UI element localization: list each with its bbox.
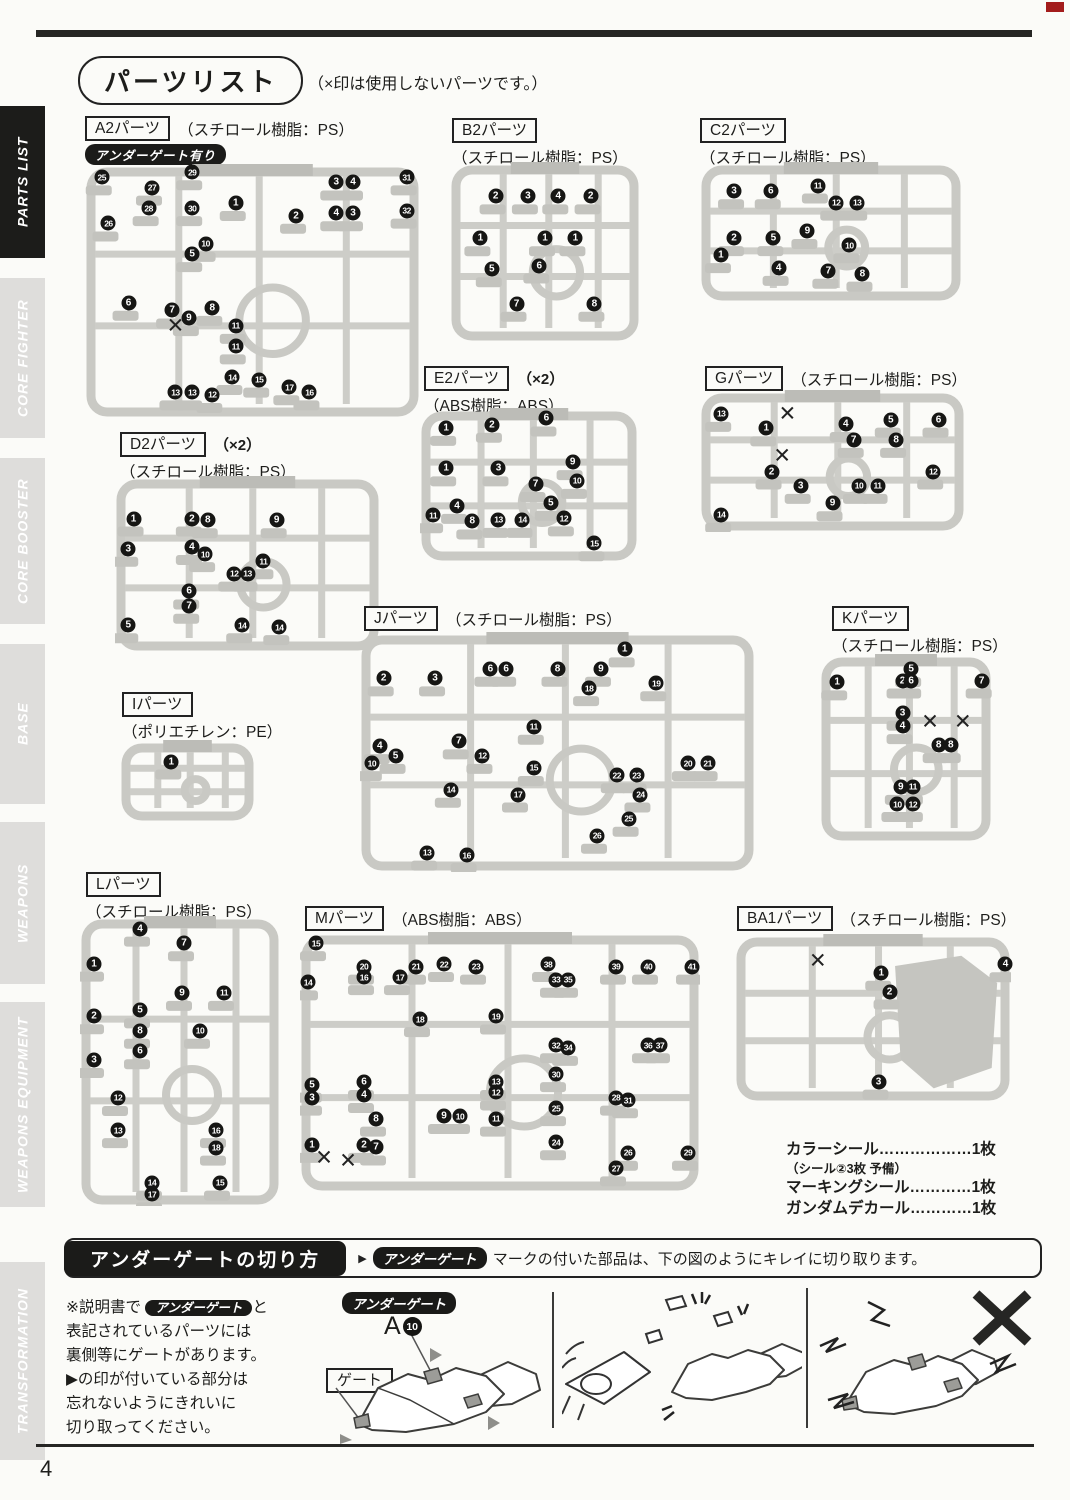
runner-diagram-c2: 36111213259101478 [700,160,962,302]
part-number: 1 [759,421,774,436]
part-number: 23 [469,959,484,974]
part-number: 12 [905,797,920,812]
part-number: 11 [810,178,825,193]
part-number: 8 [943,738,958,753]
runner-material: （スチロール樹脂：PS） [791,368,967,390]
part-number: 34 [561,1040,576,1055]
part-number: 4 [329,206,344,221]
part-number: 10 [198,236,213,251]
part-number: 7 [528,477,543,492]
part-number: 3 [727,184,742,199]
part-number: 13 [420,845,435,860]
runner-header-ba1: BA1パーツ（スチロール樹脂：PS） [737,906,1016,931]
accessory-seal-note: （シール②3枚 予備） [786,1161,1042,1178]
part-number: 13 [185,385,200,400]
part-number: 16 [459,848,474,863]
runner-header-j: Jパーツ（スチロール樹脂：PS） [364,606,622,631]
part-number: 11 [489,1111,504,1126]
part-number: 21 [409,959,424,974]
accessories-list: カラーシール………………1枚 （シール②3枚 予備） マーキングシール…………1… [786,1140,1042,1220]
part-number: 7 [974,673,989,688]
runner-diagram-i: 1 [120,738,255,822]
runner-label: BA1パーツ [737,906,833,931]
part-number: 17 [145,1187,160,1202]
part-number: 16 [209,1123,224,1138]
part-number: 20 [680,756,695,771]
manual-page: パーツリスト （×印は使用しないパーツです。） PARTS LISTCORE F… [0,0,1070,1500]
part-number: 8 [465,514,480,529]
part-number: 7 [451,734,466,749]
part-number: 3 [346,206,361,221]
part-number: 13 [111,1123,126,1138]
part-number: 6 [931,412,946,427]
part-number: 4 [998,957,1013,972]
part-number: 1 [228,195,243,210]
part-number: 17 [393,970,408,985]
part-number: 6 [133,1044,148,1059]
part-number: 10 [569,473,584,488]
part-number: 35 [561,972,576,987]
part-number: 1 [713,248,728,263]
sidebar-tab-transformation: TRANSFORMATION [0,1262,45,1460]
sidebar-tab-weapons-equipment: WEAPONS EQUIPMENT [0,1002,45,1207]
part-number: 8 [205,300,220,315]
runner-label: C2パーツ [700,118,786,143]
part-number: 24 [549,1135,564,1150]
runner-material: （ABS樹脂：ABS） [392,908,532,930]
part-number: 11 [426,508,441,523]
part-number: 23 [629,768,644,783]
part-number: 29 [185,165,200,180]
part-number: 4 [838,417,853,432]
part-number: 13 [491,512,506,527]
runner-header-m: Mパーツ（ABS樹脂：ABS） [305,906,532,931]
part-number: 14 [272,620,287,635]
part-number: 14 [515,512,530,527]
part-number: 10 [364,756,379,771]
part-number: 4 [357,1088,372,1103]
part-number: 2 [882,984,897,999]
part-number: 15 [526,760,541,775]
undergate-badge-demo: アンダーゲート [342,1292,456,1314]
part-number: 3 [871,1074,886,1089]
part-number: 5 [484,262,499,277]
part-number: 3 [305,1090,320,1105]
part-number: 17 [282,380,297,395]
part-number: 1 [439,420,454,435]
part-number: 24 [633,787,648,802]
part-number: 9 [437,1109,452,1124]
part-number: 4 [551,189,566,204]
part-number: 7 [509,296,524,311]
part-number: 22 [609,768,624,783]
part-number: 4 [895,719,910,734]
part-number: 12 [926,464,941,479]
part-number: 5 [388,748,403,763]
part-number: 6 [121,295,136,310]
part-number: 1 [439,461,454,476]
part-number: 32 [399,203,414,218]
part-number: 3 [87,1053,102,1068]
runner-header-i: Iパーツ（ポリエチレン：PE） [122,692,282,742]
x-mark: ✕ [773,445,791,466]
runner-label: E2パーツ [424,366,509,391]
part-number: 12 [111,1090,126,1105]
part-number: 7 [821,263,836,278]
part-number: 2 [727,231,742,246]
runner-label: Kパーツ [832,606,909,631]
part-number: 3 [428,671,443,686]
part-number: 38 [541,957,556,972]
part-number: 3 [520,189,535,204]
runner-material: （スチロール樹脂：PS） [446,608,622,630]
part-number: 11 [228,339,243,354]
part-number: 8 [133,1023,148,1038]
part-number: 1 [126,511,141,526]
accessory-gundam-decal: ガンダムデカール…………1枚 [786,1199,1042,1220]
part-number: 4 [771,260,786,275]
runner-diagram-a2: 2527292826301234433132510679811111313121… [85,162,420,418]
undergate-instruction-text: マークの付いた部品は、下の図のようにキレイに切り取ります。 [493,1248,927,1269]
part-number: 18 [582,681,597,696]
page-number: 4 [40,1456,52,1482]
part-number: 27 [145,180,160,195]
wrong-method-illustration [812,1288,1037,1438]
part-number: 12 [475,748,490,763]
title-note: （×印は使用しないパーツです。） [308,70,547,94]
part-number: 27 [609,1161,624,1176]
part-number: 1 [87,956,102,971]
part-number: 13 [240,566,255,581]
sidebar-tab-base: BASE [0,644,45,804]
undergate-section-title: アンダーゲートの切り方 [64,1241,346,1276]
part-number: 6 [499,661,514,676]
part-number: 5 [766,231,781,246]
sidebar-tab-core-fighter: CORE FIGHTER [0,278,45,438]
part-number: 11 [217,985,232,1000]
part-number: 11 [228,318,243,333]
part-number: 15 [213,1175,228,1190]
part-number: 19 [489,1009,504,1024]
runner-multiplier: （×2） [517,368,564,389]
part-number: 12 [205,387,220,402]
part-number: 9 [175,985,190,1000]
runner-label: A2パーツ [85,116,170,141]
bottom-rule [36,1444,1034,1447]
part-number: 2 [87,1009,102,1024]
part-number: 7 [846,432,861,447]
part-number: 13 [850,195,865,210]
part-number: 8 [587,296,602,311]
part-number: 17 [511,787,526,802]
part-number: 1 [874,965,889,980]
part-number: 6 [483,661,498,676]
part-number: 7 [369,1140,384,1155]
undergate-note: ※説明書で アンダーゲートと 表記されているパーツには 裏側等にゲートがあります… [66,1296,336,1440]
part-number: 9 [825,496,840,511]
undergate-section-header: アンダーゲートの切り方 ▶ アンダーゲート マークの付いた部品は、下の図のように… [64,1238,1042,1278]
undergate-badge: アンダーゲート [373,1247,487,1269]
part-number: 25 [621,811,636,826]
part-number: 3 [121,541,136,556]
part-number: 4 [346,175,361,190]
sidebar-tab-parts-list: PARTS LIST [0,106,45,258]
undergate-part-illustration [330,1332,548,1444]
part-number: 6 [532,258,547,273]
part-number: 14 [301,975,316,990]
part-number: 13 [168,385,183,400]
sidebar-tab-core-booster: CORE BOOSTER [0,458,45,624]
x-mark: ✕ [809,950,827,971]
part-number: 21 [700,756,715,771]
part-number: 26 [621,1145,636,1160]
part-number: 6 [182,584,197,599]
part-number: 3 [491,461,506,476]
runner-label: Lパーツ [86,872,161,897]
runner-diagram-l: 471911582106312131618141715 [80,914,280,1206]
panel-divider [806,1288,808,1428]
part-number: 2 [376,671,391,686]
part-number: 2 [488,189,503,204]
part-number: 31 [621,1093,636,1108]
part-number: 6 [539,411,554,426]
part-number: 4 [133,921,148,936]
part-number: 3 [329,175,344,190]
part-number: 9 [565,455,580,470]
part-number: 41 [685,959,700,974]
runner-multiplier: （×2） [214,434,261,455]
part-number: 10 [842,238,857,253]
page-title: パーツリスト [78,56,303,105]
part-number: 28 [141,201,156,216]
part-number: 16 [302,385,317,400]
part-number: 16 [357,970,372,985]
part-number: 6 [763,184,778,199]
part-number: 11 [256,554,271,569]
part-number: 10 [198,547,213,562]
runner-diagram-d2: 128934101112136751414 [115,474,380,652]
part-code-number: 10 [403,1317,422,1336]
part-number: 18 [413,1012,428,1027]
part-number: 3 [793,478,808,493]
part-number: 30 [185,201,200,216]
runner-label: B2パーツ [452,118,537,143]
part-number: 5 [185,247,200,262]
runner-label: Jパーツ [364,606,438,631]
runner-diagram-e2: 1261397101148131451215 [420,406,638,562]
part-number: 5 [883,412,898,427]
part-number: 4 [372,739,387,754]
runner-diagram-k: 1526734889111012✕✕ [820,652,992,842]
part-number: 8 [369,1111,384,1126]
part-number: 25 [549,1101,564,1116]
accessory-marking-seal: マーキングシール…………1枚 [786,1178,1042,1199]
part-number: 1 [538,231,553,246]
undergate-instruction-row: ▶ アンダーゲート マークの付いた部品は、下の図のようにキレイに切り取ります。 [358,1247,926,1269]
part-number: 10 [193,1023,208,1038]
arrow-icon: ▶ [358,1252,366,1265]
part-number: 15 [309,936,324,951]
part-number: 14 [443,782,458,797]
runner-header-a2: A2パーツ（スチロール樹脂：PS）アンダーゲート有り [85,116,354,165]
note-body: と 表記されているパーツには 裏側等にゲートがあります。 ▶の印が付いている部分… [66,1299,268,1436]
x-mark: ✕ [921,712,939,733]
part-number: 1 [473,231,488,246]
part-number: 5 [543,495,558,510]
part-number: 26 [590,828,605,843]
part-number: 19 [649,676,664,691]
runner-diagram-ba1: 1234✕ [735,932,1011,1102]
part-number: 2 [484,417,499,432]
part-number: 7 [177,936,192,951]
runner-header-k: Kパーツ（スチロール樹脂：PS） [832,606,1008,656]
sidebar-tab-weapons: WEAPONS [0,822,45,984]
runner-diagram-m: 1520212223383940411416173335181932343637… [300,930,700,1192]
part-number: 1 [164,754,179,769]
note-prefix: ※説明書で [66,1299,141,1316]
x-mark: ✕ [779,403,797,424]
runner-diagram-b2: 23421115678 [450,160,640,342]
part-number: 11 [526,719,541,734]
nippers-cutting-illustration [562,1292,802,1437]
part-number: 4 [450,498,465,513]
part-number: 1 [830,675,845,690]
part-number: 25 [94,170,109,185]
part-number: 2 [289,208,304,223]
accessory-color-seal: カラーシール………………1枚 [786,1140,1042,1161]
runner-diagram-g: 1314567823101112914✕✕ [700,388,965,532]
part-number: 8 [855,266,870,281]
part-number: 7 [182,598,197,613]
part-number: 5 [133,1003,148,1018]
x-mark: ✕ [339,1150,357,1171]
runner-material: （スチロール樹脂：PS） [841,908,1017,930]
panel-divider [552,1292,554,1428]
part-number: 40 [641,959,656,974]
part-number: 13 [714,406,729,421]
part-number: 10 [890,797,905,812]
part-number: 10 [453,1109,468,1124]
undergate-badge-inline: アンダーゲート [145,1300,252,1316]
part-number: 1 [568,231,583,246]
part-number: 8 [200,513,215,528]
part-number: 12 [829,195,844,210]
runner-diagram-j: 2366891181920214710121151517141316222324… [360,630,755,872]
part-number: 8 [550,661,565,676]
part-number: 37 [653,1038,668,1053]
part-number: 15 [587,536,602,551]
part-number: 11 [870,478,885,493]
part-number: 39 [609,959,624,974]
top-rule [36,30,1032,37]
part-number: 18 [209,1140,224,1155]
x-mark: ✕ [315,1147,333,1168]
part-number: 2 [583,189,598,204]
part-number: 5 [121,618,136,633]
runner-label: Mパーツ [305,906,384,931]
part-number: 14 [714,507,729,522]
part-number: 15 [252,372,267,387]
part-number: 9 [800,224,815,239]
part-number: 1 [617,642,632,657]
x-mark: ✕ [167,315,185,336]
part-number: 31 [399,170,414,185]
part-number: 12 [489,1085,504,1100]
part-number: 22 [437,957,452,972]
part-number: 14 [235,618,250,633]
corner-red-mark [1046,2,1064,12]
part-number: 2 [184,511,199,526]
runner-label: D2パーツ [120,432,206,457]
part-number: 29 [681,1145,696,1160]
runner-material: （スチロール樹脂：PS） [178,118,354,140]
part-number: 30 [549,1067,564,1082]
part-number: 26 [101,216,116,231]
part-number: 12 [556,511,571,526]
x-mark: ✕ [954,712,972,733]
runner-label: Iパーツ [122,692,193,717]
part-number: 6 [904,673,919,688]
part-number: 14 [225,370,240,385]
part-number: 9 [593,661,608,676]
part-number: 10 [852,478,867,493]
part-number: 8 [889,432,904,447]
part-number: 11 [905,779,920,794]
part-number: 9 [269,513,284,528]
